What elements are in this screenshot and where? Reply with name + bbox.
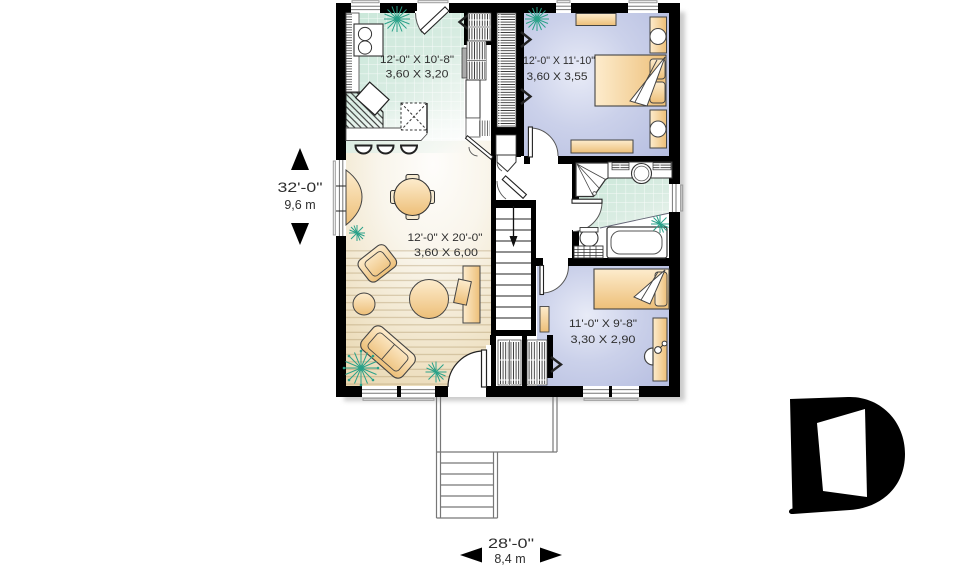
svg-text:8,4 m: 8,4 m	[494, 552, 525, 566]
svg-text:3,60 X 6,00: 3,60 X 6,00	[414, 247, 478, 259]
svg-text:11'-0" X 9'-8": 11'-0" X 9'-8"	[569, 318, 637, 330]
svg-text:28'-0": 28'-0"	[488, 535, 534, 551]
svg-text:12'-0" X 20'-0": 12'-0" X 20'-0"	[408, 232, 483, 244]
svg-text:12'-0" X 11'-10": 12'-0" X 11'-10"	[523, 55, 595, 67]
svg-text:9,6 m: 9,6 m	[284, 198, 315, 212]
svg-text:12'-0" X 10'-8": 12'-0" X 10'-8"	[380, 54, 454, 66]
svg-text:32'-0": 32'-0"	[278, 179, 323, 195]
svg-text:3,60 X 3,55: 3,60 X 3,55	[527, 71, 588, 83]
svg-text:3,30 X 2,90: 3,30 X 2,90	[571, 334, 636, 346]
svg-text:3,60 X 3,20: 3,60 X 3,20	[386, 69, 449, 81]
